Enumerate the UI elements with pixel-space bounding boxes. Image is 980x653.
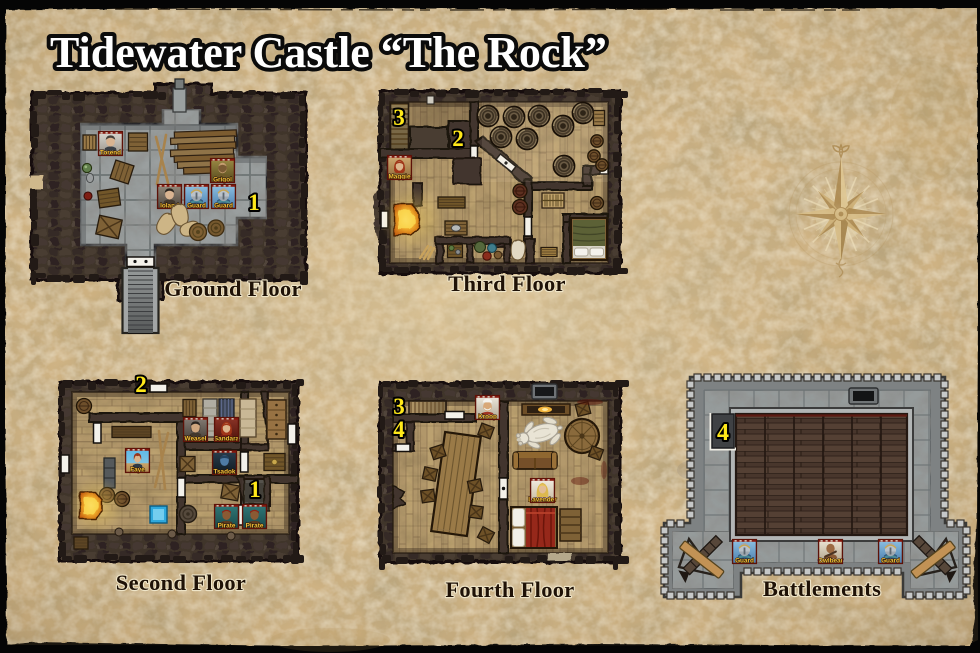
svg-text:1: 1 [248, 190, 260, 215]
svg-text:Battlements: Battlements [763, 576, 881, 601]
svg-text:Second Floor: Second Floor [116, 570, 246, 595]
svg-text:3: 3 [393, 394, 405, 419]
svg-text:2: 2 [452, 126, 464, 151]
svg-text:3: 3 [393, 105, 405, 130]
svg-text:4: 4 [717, 420, 729, 446]
svg-text:4: 4 [393, 417, 405, 442]
svg-text:1: 1 [249, 477, 261, 502]
svg-text:Tidewater Castle “The Rock”: Tidewater Castle “The Rock” [50, 28, 607, 77]
svg-text:Ground Floor: Ground Floor [164, 276, 302, 301]
svg-text:Third Floor: Third Floor [448, 271, 566, 296]
svg-text:Fourth Floor: Fourth Floor [445, 577, 574, 602]
svg-text:2: 2 [135, 372, 147, 397]
